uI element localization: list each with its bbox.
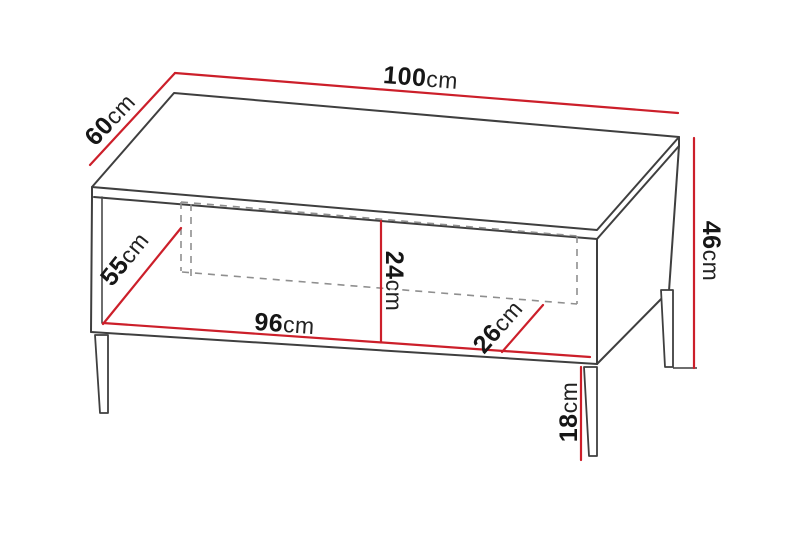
front-right-leg (584, 367, 597, 456)
dimension-label-overall-height: 46cm (697, 221, 725, 281)
dimension-inner-right-depth: 26cm (468, 295, 543, 359)
coffee-table-drawing: 100cm 60cm 46cm 55cm 24cm 96cm (0, 0, 800, 533)
back-right-leg (661, 290, 673, 367)
dimension-inner-left-depth: 55cm (95, 227, 181, 324)
dimension-line-inner-width (103, 323, 590, 357)
table-top-surface (92, 93, 679, 230)
dimension-overall-height: 46cm (694, 138, 725, 368)
dimension-label-inner-height: 24cm (380, 251, 408, 311)
carcass-left-outer-edge (91, 197, 92, 332)
front-left-leg (95, 335, 108, 413)
drawer-bottom-edge (182, 272, 577, 304)
dimension-label-inner-right-depth: 26cm (468, 295, 529, 359)
dimension-inner-height: 24cm (380, 221, 408, 342)
dimension-label-inner-left-depth: 55cm (95, 227, 155, 292)
dimension-label-top-width: 100cm (382, 61, 459, 95)
carcass-bottom-front-edge (91, 332, 597, 364)
right-side-panel-back-edge (669, 146, 679, 291)
dimension-label-inner-width: 96cm (253, 308, 315, 340)
dimension-leg-height: 18cm (555, 367, 583, 460)
right-side-panel-bottom-edge (597, 291, 669, 364)
dimension-label-leg-height: 18cm (555, 382, 583, 442)
furniture-dimension-diagram: 100cm 60cm 46cm 55cm 24cm 96cm (0, 0, 800, 533)
